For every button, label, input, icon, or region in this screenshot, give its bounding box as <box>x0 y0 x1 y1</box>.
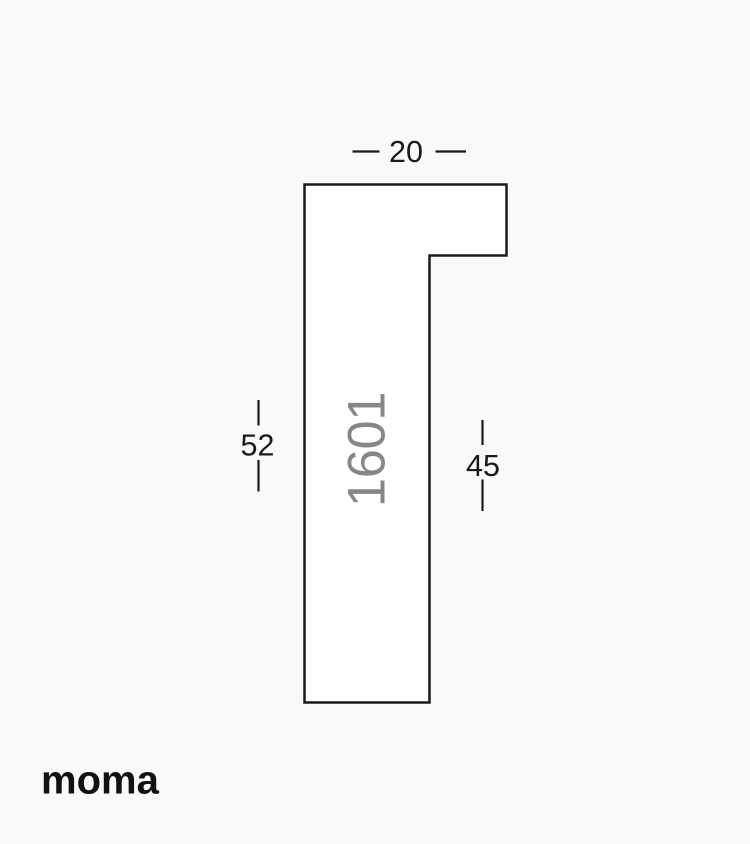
svg-text:20: 20 <box>389 135 423 169</box>
svg-text:45: 45 <box>466 449 500 483</box>
svg-text:52: 52 <box>241 429 275 463</box>
svg-text:1601: 1601 <box>338 392 397 507</box>
svg-text:moma: moma <box>41 759 160 803</box>
